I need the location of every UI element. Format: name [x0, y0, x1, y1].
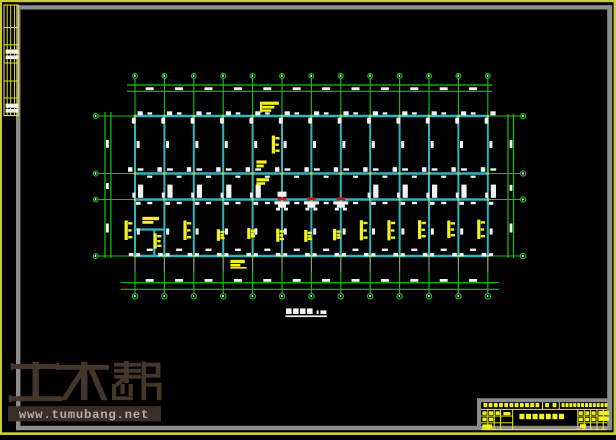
svg-text:www.tumubang.net: www.tumubang.net [19, 408, 149, 422]
